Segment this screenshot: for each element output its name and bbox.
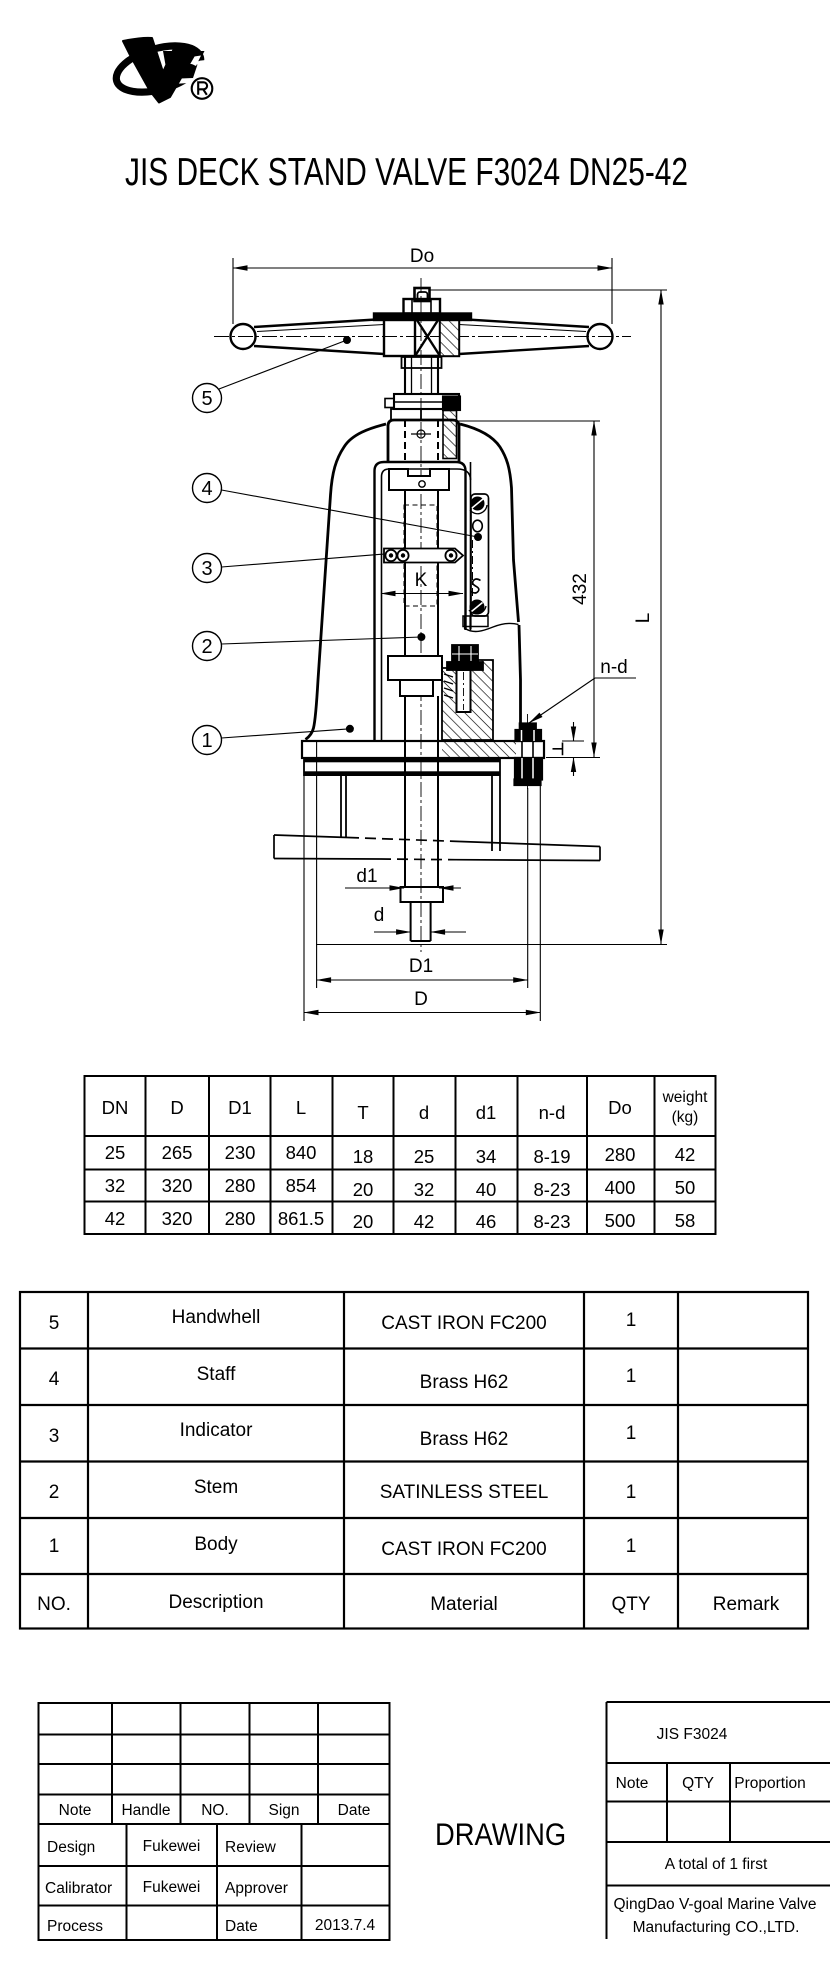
svg-text:4: 4 <box>201 478 212 500</box>
svg-text:Date: Date <box>338 1802 371 1819</box>
svg-text:Description: Description <box>168 1592 263 1613</box>
svg-text:Design: Design <box>47 1839 95 1856</box>
svg-text:n-d: n-d <box>539 1102 566 1123</box>
svg-text:Stem: Stem <box>194 1477 238 1498</box>
svg-text:Proportion: Proportion <box>734 1775 806 1792</box>
svg-text:T: T <box>357 1102 368 1123</box>
svg-text:Process: Process <box>47 1918 103 1935</box>
svg-text:Note: Note <box>616 1775 649 1792</box>
svg-text:NO.: NO. <box>37 1594 71 1615</box>
svg-text:Fukewei: Fukewei <box>143 1879 201 1896</box>
svg-text:5: 5 <box>49 1313 60 1334</box>
svg-text:42: 42 <box>414 1211 435 1232</box>
svg-text:QTY: QTY <box>682 1775 714 1792</box>
svg-text:5: 5 <box>201 388 212 410</box>
svg-text:L: L <box>296 1097 306 1118</box>
svg-text:Remark: Remark <box>713 1594 780 1615</box>
svg-text:SATINLESS STEEL: SATINLESS STEEL <box>380 1482 549 1503</box>
svg-text:Sign: Sign <box>268 1802 299 1819</box>
svg-text:CAST IRON FC200: CAST IRON FC200 <box>381 1313 546 1334</box>
svg-text:3: 3 <box>49 1426 60 1447</box>
svg-text:58: 58 <box>675 1210 696 1231</box>
svg-text:n-d: n-d <box>600 657 627 678</box>
svg-text:20: 20 <box>353 1211 374 1232</box>
svg-text:D: D <box>170 1097 183 1118</box>
svg-text:1: 1 <box>201 730 212 752</box>
svg-text:25: 25 <box>105 1142 126 1163</box>
svg-text:QTY: QTY <box>611 1594 650 1615</box>
svg-text:400: 400 <box>605 1177 636 1198</box>
svg-text:1: 1 <box>626 1366 637 1387</box>
svg-text:280: 280 <box>605 1144 636 1165</box>
svg-text:JIS F3024: JIS F3024 <box>657 1726 728 1743</box>
svg-text:20: 20 <box>353 1179 374 1200</box>
svg-text:42: 42 <box>675 1144 696 1165</box>
svg-text:42: 42 <box>105 1208 126 1229</box>
svg-text:2013.7.4: 2013.7.4 <box>315 1917 376 1934</box>
svg-text:Brass H62: Brass H62 <box>420 1429 509 1450</box>
svg-text:432: 432 <box>570 573 591 605</box>
svg-text:D1: D1 <box>228 1097 252 1118</box>
svg-text:(kg): (kg) <box>672 1109 699 1126</box>
svg-text:861.5: 861.5 <box>278 1208 324 1229</box>
svg-text:320: 320 <box>162 1208 193 1229</box>
svg-text:280: 280 <box>225 1175 256 1196</box>
svg-text:25: 25 <box>414 1146 435 1167</box>
svg-text:d1: d1 <box>356 866 377 887</box>
svg-text:265: 265 <box>162 1142 193 1163</box>
svg-text:46: 46 <box>476 1211 497 1232</box>
svg-text:3: 3 <box>201 558 212 580</box>
svg-text:Date: Date <box>225 1918 258 1935</box>
svg-text:18: 18 <box>353 1146 374 1167</box>
svg-text:4: 4 <box>49 1369 60 1390</box>
svg-text:840: 840 <box>286 1142 317 1163</box>
svg-text:d1: d1 <box>476 1102 497 1123</box>
svg-text:2: 2 <box>49 1482 60 1503</box>
svg-text:Fukewei: Fukewei <box>143 1838 201 1855</box>
svg-text:8-23: 8-23 <box>533 1211 570 1232</box>
svg-text:D: D <box>414 989 428 1010</box>
svg-text:Note: Note <box>59 1802 92 1819</box>
svg-text:32: 32 <box>414 1179 435 1200</box>
svg-text:8-19: 8-19 <box>533 1146 570 1167</box>
svg-text:8-23: 8-23 <box>533 1179 570 1200</box>
svg-text:QingDao V-goal Marine Valve: QingDao V-goal Marine Valve <box>613 1896 816 1913</box>
svg-text:Handwhell: Handwhell <box>172 1307 261 1328</box>
svg-text:280: 280 <box>225 1208 256 1229</box>
svg-text:Approver: Approver <box>225 1880 288 1897</box>
svg-text:Brass H62: Brass H62 <box>420 1372 509 1393</box>
svg-text:50: 50 <box>675 1177 696 1198</box>
svg-text:Manufacturing CO.,LTD.: Manufacturing CO.,LTD. <box>633 1919 800 1936</box>
svg-text:2: 2 <box>201 636 212 658</box>
svg-text:Material: Material <box>430 1594 498 1615</box>
svg-text:230: 230 <box>225 1142 256 1163</box>
svg-text:500: 500 <box>605 1210 636 1231</box>
svg-text:Handle: Handle <box>121 1802 170 1819</box>
svg-text:854: 854 <box>286 1175 317 1196</box>
svg-text:34: 34 <box>476 1146 497 1167</box>
svg-text:Staff: Staff <box>197 1364 236 1385</box>
svg-text:320: 320 <box>162 1175 193 1196</box>
svg-text:Do: Do <box>410 246 434 267</box>
svg-text:1: 1 <box>626 1536 637 1557</box>
svg-text:d: d <box>374 905 385 926</box>
svg-text:Body: Body <box>194 1534 238 1555</box>
svg-text:Do: Do <box>608 1097 632 1118</box>
svg-text:Calibrator: Calibrator <box>45 1880 112 1897</box>
svg-text:32: 32 <box>105 1175 126 1196</box>
svg-text:CAST IRON FC200: CAST IRON FC200 <box>381 1539 546 1560</box>
svg-text:40: 40 <box>476 1179 497 1200</box>
svg-text:1: 1 <box>626 1482 637 1503</box>
svg-text:d: d <box>419 1102 429 1123</box>
svg-text:D1: D1 <box>409 956 433 977</box>
svg-text:weight: weight <box>662 1089 708 1106</box>
svg-text:1: 1 <box>626 1310 637 1331</box>
svg-text:A total of 1 first: A total of 1 first <box>665 1856 768 1873</box>
svg-text:Indicator: Indicator <box>180 1420 254 1441</box>
svg-text:Review: Review <box>225 1839 277 1856</box>
svg-text:1: 1 <box>49 1536 60 1557</box>
svg-text:DN: DN <box>102 1097 129 1118</box>
svg-text:L: L <box>633 613 654 624</box>
svg-text:NO.: NO. <box>201 1802 229 1819</box>
svg-text:1: 1 <box>626 1423 637 1444</box>
